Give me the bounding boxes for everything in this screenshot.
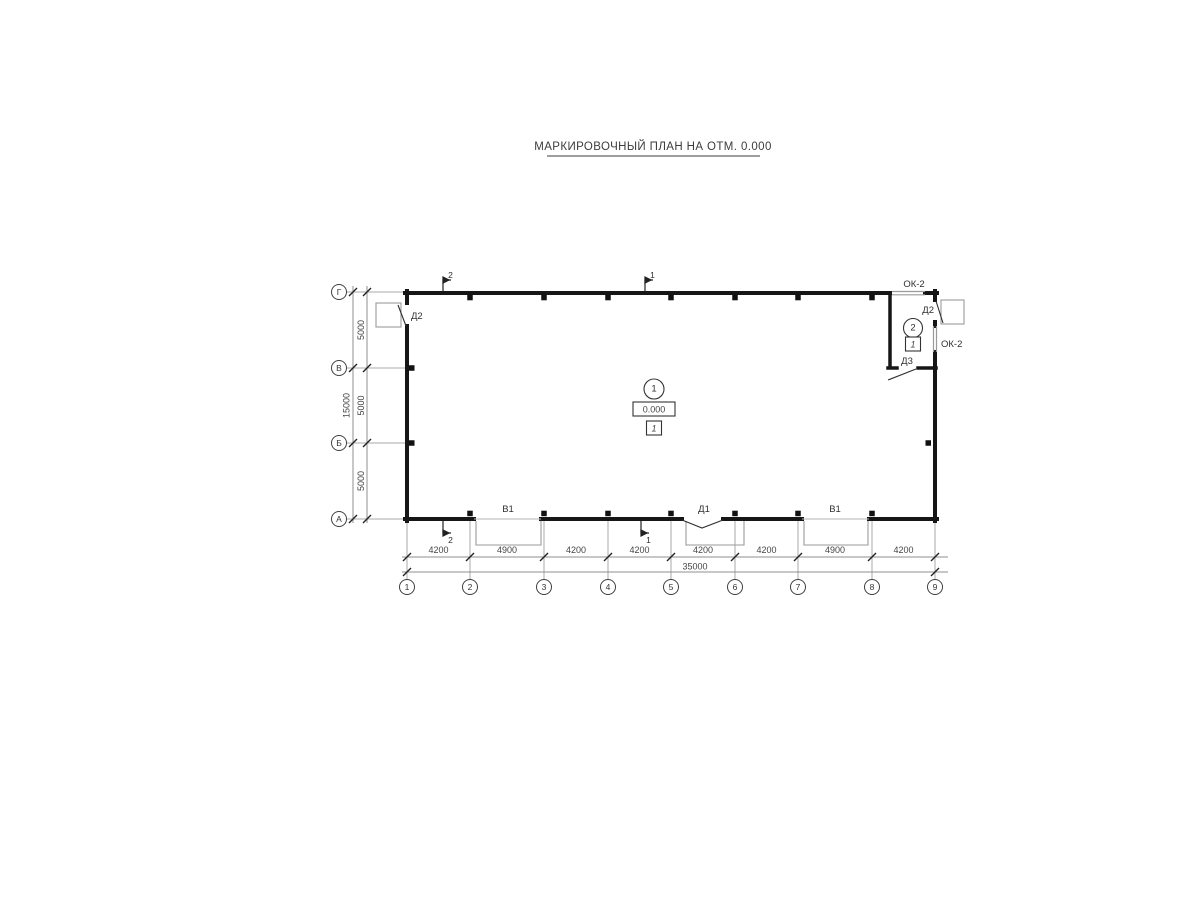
axis-bubble-9: 9: [933, 582, 938, 592]
door-d2-right-porch: [941, 300, 964, 324]
axis-bubble-b: Б: [336, 438, 342, 448]
gate-v1-right-label: В1: [829, 504, 841, 515]
section-mark-2-bottom: [443, 521, 451, 536]
drawing-title: МАРКИРОВОЧНЫЙ ПЛАН НА ОТМ. 0.000: [534, 140, 772, 153]
dim-bottom-7: 4900: [825, 545, 845, 555]
section-2-bottom-label: 2: [448, 535, 453, 545]
axis-bubble-2: 2: [468, 582, 473, 592]
room2-number: 2: [910, 323, 915, 334]
room2-floor-type: 1: [910, 340, 915, 350]
section-1-bottom-label: 1: [646, 535, 651, 545]
drawing-sheet: МАРКИРОВОЧНЫЙ ПЛАН НА ОТМ. 0.000: [0, 0, 1200, 900]
axis-bubble-3: 3: [542, 582, 547, 592]
dim-bottom-total: 35000: [682, 562, 707, 572]
dim-bottom-6: 4200: [756, 545, 776, 555]
axis-bubble-5: 5: [669, 582, 674, 592]
door-d2-left-porch: [376, 303, 401, 327]
door-d3-leaf: [888, 369, 916, 380]
window-ok2-right-label: ОК-2: [941, 339, 962, 350]
dim-left-total: 15000: [342, 393, 352, 418]
window-ok2-right-lines: [934, 326, 937, 352]
axis-bubbles-bottom: 1 2 3 4 5 6 7 8 9: [400, 580, 943, 595]
axis-bubble-g: Г: [337, 287, 342, 297]
door-d1-label: Д1: [698, 504, 710, 515]
dim-bottom-4: 4200: [629, 545, 649, 555]
room1-elevation: 0.000: [643, 405, 666, 415]
axis-bubble-4: 4: [606, 582, 611, 592]
dim-bottom-5: 4200: [693, 545, 713, 555]
axis-bubble-a: А: [336, 514, 342, 524]
gate-v1-left-frame: [476, 521, 541, 545]
section-1-top-label: 1: [650, 270, 655, 280]
axis-bubble-8: 8: [870, 582, 875, 592]
door-d2-right-leaf: [936, 301, 943, 323]
door-d2-left-leaf: [398, 305, 406, 326]
axis-bubble-6: 6: [733, 582, 738, 592]
dim-left-3: 5000: [356, 471, 366, 491]
dim-left-2: 5000: [356, 395, 366, 415]
gate-v1-left-label: В1: [502, 504, 514, 515]
section-mark-1-bottom: [641, 521, 649, 536]
door-d1-leaves: [682, 520, 723, 528]
room1-number: 1: [651, 384, 656, 395]
door-d2-right-label: Д2: [922, 305, 934, 316]
dim-bottom-8: 4200: [893, 545, 913, 555]
dim-bottom-3: 4200: [566, 545, 586, 555]
axis-bubble-7: 7: [796, 582, 801, 592]
dim-bottom-1: 4200: [428, 545, 448, 555]
dim-left-1: 5000: [356, 320, 366, 340]
door-d3-label: Д3: [901, 356, 913, 367]
window-ok2-top-lines: [892, 292, 925, 295]
floor-plan-canvas: МАРКИРОВОЧНЫЙ ПЛАН НА ОТМ. 0.000: [0, 0, 1200, 900]
dim-bottom-2: 4900: [497, 545, 517, 555]
section-2-top-label: 2: [448, 270, 453, 280]
axis-bubble-1: 1: [405, 582, 410, 592]
gate-v1-right-frame: [804, 521, 868, 545]
door-d2-left-label: Д2: [411, 311, 423, 322]
axis-bubble-v: В: [336, 363, 342, 373]
window-ok2-top-label: ОК-2: [903, 279, 924, 290]
room1-floor-type: 1: [651, 424, 656, 434]
